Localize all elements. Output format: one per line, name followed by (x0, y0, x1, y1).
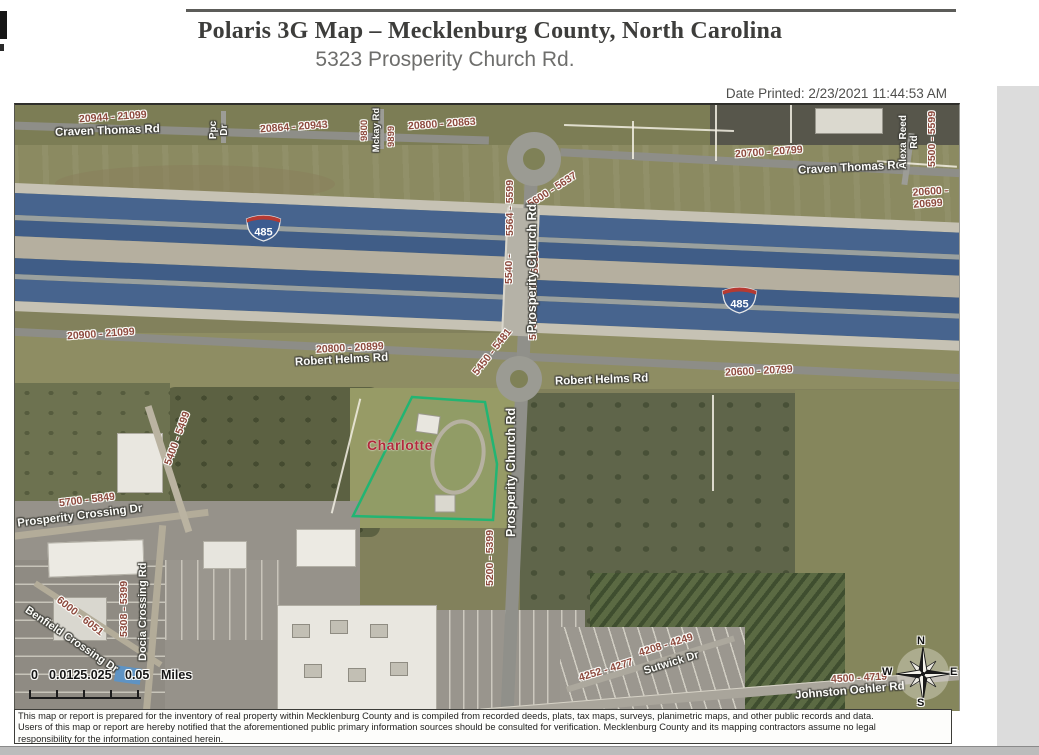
city-label: Charlotte (367, 438, 433, 452)
scale-zero: 0 (31, 669, 38, 682)
scale-ruler (29, 690, 141, 699)
interstate-485-shield: 485 (721, 283, 758, 314)
compass-north-label: N (917, 636, 925, 647)
disclaimer-box: This map or report is prepared for the i… (14, 709, 952, 744)
address-range-label: 20600 - 20699 (912, 183, 960, 211)
interstate-485-shield: 485 (245, 211, 282, 242)
road-label-prosperity-church: Prosperity Church Rd (505, 408, 518, 537)
scan-edge-strip (997, 86, 1039, 746)
address-range-label: 5308 - 5399 (119, 581, 130, 637)
road-label-mckay-rd: Mckay Rd (372, 107, 382, 153)
date-printed: Date Printed: 2/23/2021 11:44:53 AM (726, 86, 947, 101)
disclaimer-line: responsibility for the information conta… (18, 734, 948, 745)
scan-smudge-artifact (0, 44, 4, 51)
interstate-number: 485 (254, 227, 272, 239)
compass-west-label: W (882, 667, 892, 678)
address-range-label: 9800 (360, 120, 370, 141)
page-title: Polaris 3G Map – Mecklenburg County, Nor… (0, 18, 980, 45)
road-label-ppc-dr: Ppc Dr (209, 115, 231, 145)
road-label-prosperity-church: Prosperity Church Rd (526, 204, 539, 333)
scanned-map-page: Polaris 3G Map – Mecklenburg County, Nor… (0, 0, 1039, 755)
address-range-label: 5500 - 5599 (927, 111, 938, 167)
scan-smudge-artifact (0, 11, 7, 39)
aerial-map: 485 485 20944 - 21099 20864 - 20943 2080… (14, 103, 960, 711)
address-range-label: 5200 - 5399 (485, 530, 496, 586)
page-subtitle: 5323 Prosperity Church Rd. (0, 48, 890, 72)
disclaimer-line: This map or report is prepared for the i… (18, 711, 948, 722)
parcel-overlay (15, 105, 959, 711)
parcel-building (416, 414, 440, 435)
address-range-label: 5540 - (504, 254, 515, 284)
compass-rose (894, 645, 952, 703)
address-range-label: 9899 (387, 126, 397, 147)
parcel-building (435, 495, 455, 512)
scale-max: 0.05 (125, 669, 149, 682)
compass-south-label: S (917, 698, 924, 709)
compass-east-label: E (950, 667, 957, 678)
road-label-docia-crossing: Docia Crossing Rd (138, 563, 149, 661)
interstate-number: 485 (730, 299, 748, 311)
scan-line-artifact (186, 9, 956, 12)
address-range-label: 5564 - 5599 (505, 180, 516, 236)
scan-bottom-strip (0, 746, 1039, 755)
scale-units: Miles (161, 669, 192, 682)
road-label-alexa-reed-rd: Alexa Reed Rd (899, 107, 921, 177)
disclaimer-line: Users of this map or report are hereby n… (18, 722, 948, 733)
scale-mid-values: 0.0125.025 (49, 669, 112, 682)
